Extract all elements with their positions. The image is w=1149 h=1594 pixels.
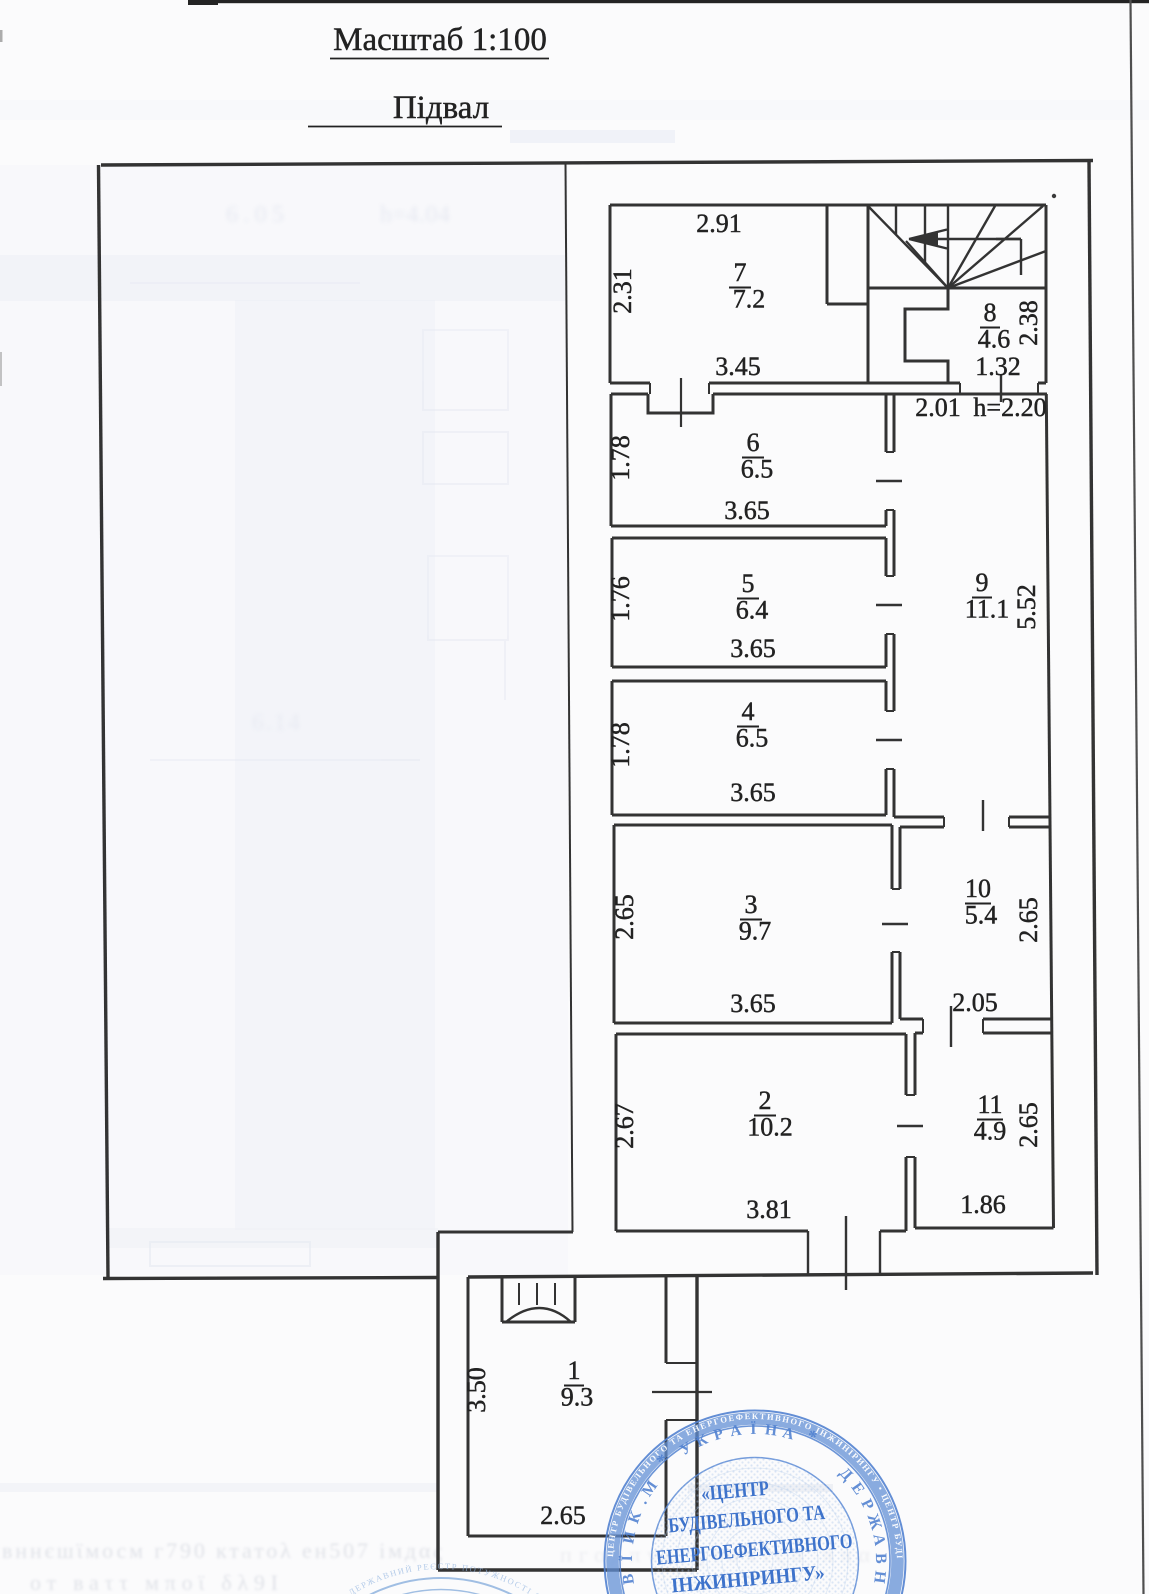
svg-text:Ї: Ї [750, 1421, 756, 1438]
svg-text:3.45: 3.45 [715, 352, 761, 381]
svg-text:8: 8 [984, 298, 997, 327]
svg-text:2: 2 [759, 1086, 772, 1115]
svg-text:1: 1 [568, 1356, 581, 1385]
svg-text:6.05: 6.05 [226, 202, 284, 228]
svg-text:2.65: 2.65 [610, 894, 639, 940]
svg-text:1.76: 1.76 [606, 576, 635, 622]
svg-text:1.78: 1.78 [606, 435, 635, 481]
svg-text:2.91: 2.91 [696, 209, 742, 238]
svg-text:3.65: 3.65 [730, 778, 776, 807]
svg-text:3.65: 3.65 [730, 634, 776, 663]
svg-text:6.5: 6.5 [741, 455, 774, 484]
svg-text:1.86: 1.86 [960, 1190, 1006, 1219]
svg-text:2.05: 2.05 [952, 988, 998, 1017]
svg-text:2.67: 2.67 [610, 1103, 639, 1149]
svg-text:2.38: 2.38 [1014, 300, 1043, 346]
svg-text:1.32: 1.32 [975, 352, 1021, 381]
svg-text:3: 3 [745, 890, 758, 919]
svg-text:10.2: 10.2 [747, 1113, 793, 1142]
svg-text:Ї: Ї [618, 1555, 636, 1562]
svg-text:7: 7 [734, 258, 747, 287]
svg-text:6: 6 [747, 428, 760, 457]
svg-text:В: В [872, 1553, 889, 1564]
svg-text:3.81: 3.81 [746, 1195, 792, 1224]
svg-text:2.01: 2.01 [915, 393, 961, 422]
svg-text:2.65: 2.65 [1014, 1102, 1043, 1148]
svg-text:Масштаб 1:100: Масштаб 1:100 [333, 22, 547, 58]
svg-text:вннєшϊмосм г790 ктатоλ ен507 і: вннєшϊмосм г790 ктатоλ ен507 імдας [2, 1538, 442, 1563]
svg-text:3.50: 3.50 [462, 1367, 491, 1413]
svg-text:9: 9 [976, 568, 989, 597]
svg-text:4.9: 4.9 [974, 1117, 1007, 1146]
svg-text:11: 11 [977, 1090, 1002, 1119]
svg-text:5.4: 5.4 [965, 901, 998, 930]
svg-text:4.6: 4.6 [978, 325, 1011, 354]
svg-text:9.7: 9.7 [739, 917, 772, 946]
svg-text:1.78: 1.78 [606, 722, 635, 768]
svg-text:Підвал: Підвал [393, 90, 489, 126]
svg-text:Н: Н [764, 1421, 778, 1439]
svg-text:6.5: 6.5 [736, 724, 769, 753]
svg-text:2.31: 2.31 [608, 268, 637, 314]
svg-text:4: 4 [742, 697, 755, 726]
svg-text:от ваττ мποϊ δλ9Ι: от ваττ мποϊ δλ9Ι [30, 1570, 278, 1594]
svg-text:2.65: 2.65 [1014, 897, 1043, 943]
svg-text:h=2.20: h=2.20 [973, 393, 1046, 422]
svg-text:9.3: 9.3 [561, 1383, 594, 1412]
svg-text:6.4: 6.4 [736, 596, 769, 625]
svg-text:6.14: 6.14 [252, 710, 300, 736]
svg-text:7.2: 7.2 [733, 285, 766, 314]
svg-text:h=4.04: h=4.04 [380, 202, 450, 228]
svg-text:10: 10 [965, 874, 991, 903]
svg-text:3.65: 3.65 [730, 989, 776, 1018]
svg-text:2.65: 2.65 [540, 1501, 586, 1530]
svg-text:5.52: 5.52 [1012, 584, 1041, 630]
svg-text:11.1: 11.1 [965, 595, 1010, 624]
svg-text:3.65: 3.65 [724, 496, 770, 525]
svg-text:5: 5 [742, 569, 755, 598]
